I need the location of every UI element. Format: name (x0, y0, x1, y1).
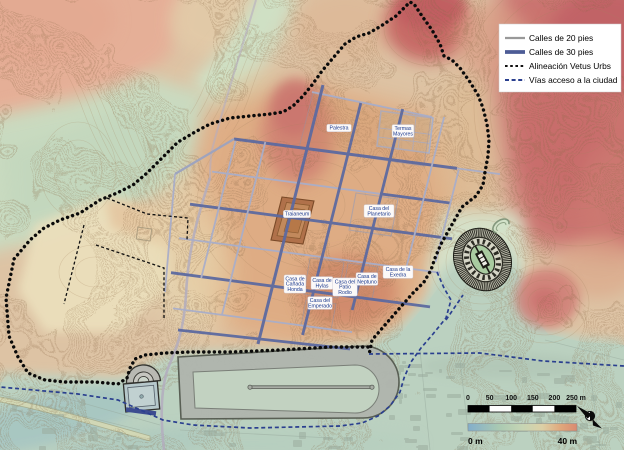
svg-text:250 m: 250 m (566, 395, 586, 402)
svg-text:0: 0 (466, 395, 470, 402)
svg-text:Hylas: Hylas (316, 283, 329, 289)
svg-text:50: 50 (486, 395, 494, 402)
svg-text:Planetario: Planetario (367, 211, 390, 217)
svg-text:Honda: Honda (287, 287, 302, 293)
svg-text:Emperado: Emperado (308, 303, 332, 309)
svg-text:40 m: 40 m (558, 436, 578, 446)
svg-text:0 m: 0 m (468, 436, 483, 446)
svg-text:Vías acceso a la ciudad: Vías acceso a la ciudad (529, 75, 618, 85)
svg-text:Neptuno: Neptuno (357, 279, 377, 285)
svg-text:200: 200 (549, 395, 561, 402)
svg-text:Palestra: Palestra (329, 126, 348, 132)
svg-text:Alineación Vetus Urbs: Alineación Vetus Urbs (529, 61, 611, 71)
svg-text:Calles de 20 pies: Calles de 20 pies (529, 33, 593, 43)
svg-text:Traianeum: Traianeum (285, 212, 310, 218)
svg-text:Calles de 30 pies: Calles de 30 pies (529, 47, 593, 57)
svg-text:Mayores: Mayores (393, 131, 413, 137)
svg-text:Exedra: Exedra (390, 272, 407, 278)
svg-text:Rodio: Rodio (338, 290, 352, 296)
svg-text:100: 100 (505, 395, 517, 402)
svg-text:150: 150 (527, 395, 539, 402)
